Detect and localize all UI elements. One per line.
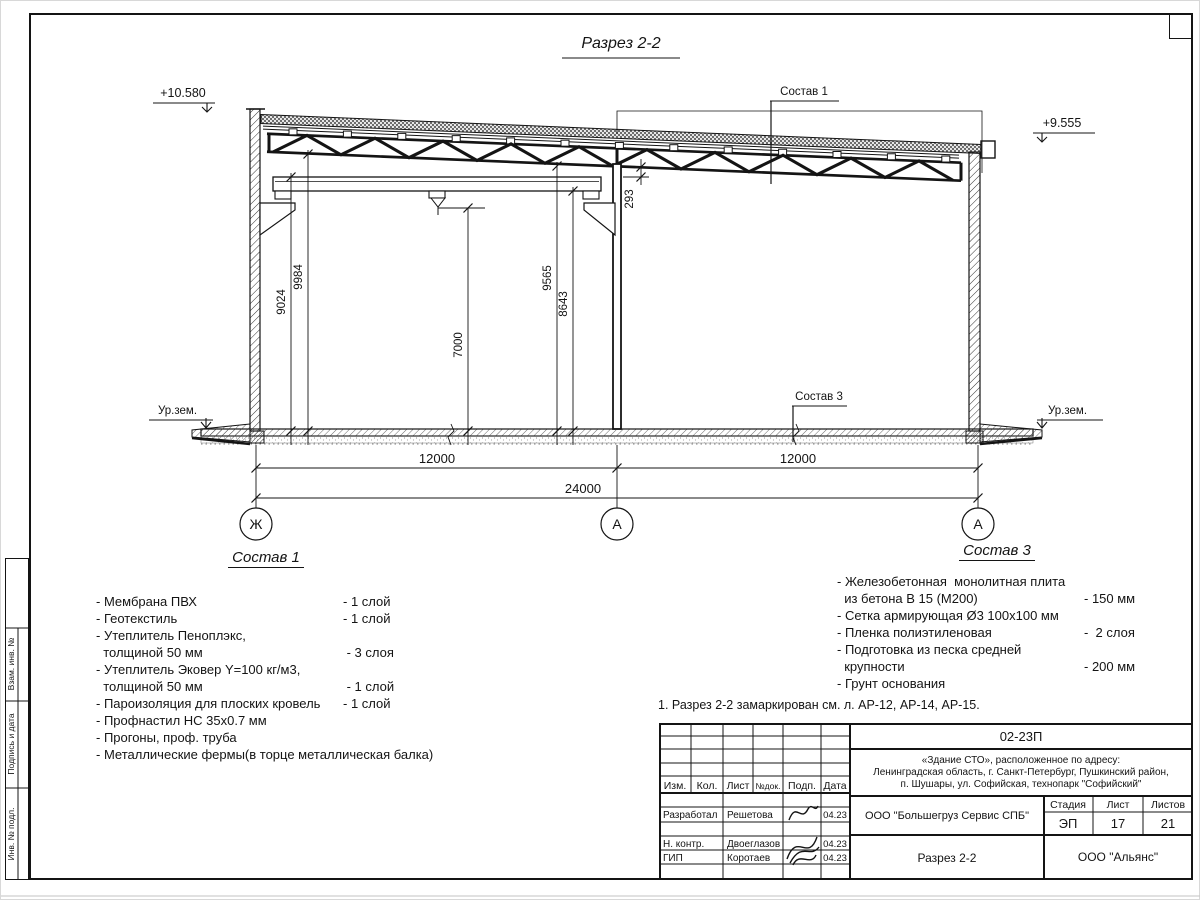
list-item: - Железобетонная монолитная плита — [837, 573, 1167, 590]
sheet-label: Лист — [1107, 799, 1130, 811]
crane-hoist — [429, 191, 445, 215]
dim-span-left: 12000 — [419, 451, 455, 466]
col-list: Лист — [727, 780, 750, 792]
row-date: 04.23 — [823, 810, 847, 821]
left-wall — [246, 109, 265, 431]
col-izm: Изм. — [664, 780, 687, 792]
company-name: ООО "Большегруз Сервис СПБ" — [865, 810, 1029, 822]
roof-edge-cap — [981, 141, 995, 158]
org-name: ООО "Альянс" — [1078, 850, 1158, 864]
col-podp: Подп. — [788, 780, 816, 792]
dim-8643: 8643 — [558, 291, 570, 317]
ground-label-left: Ур.зем. — [158, 405, 197, 417]
axis-label-mid: А — [612, 516, 622, 532]
stage-label: Стадия — [1050, 799, 1086, 811]
list-item: - Профнастил НС 35х0.7 мм — [96, 712, 456, 729]
list-item: - Металлические фермы(в торце металличес… — [96, 746, 456, 763]
list-item: из бетона В 15 (М200)- 150 мм — [837, 590, 1167, 607]
ground-label-right: Ур.зем. — [1048, 405, 1087, 417]
doc-number: 02-23П — [1000, 729, 1043, 744]
project-address-line2: Ленинградская область, г. Санкт-Петербур… — [873, 766, 1169, 778]
page-edge — [1, 895, 1200, 897]
title-block: Изм. Кол. Лист №док. Подп. Дата Разработ… — [659, 723, 1193, 880]
row-date: 04.23 — [823, 853, 847, 864]
elevation-left-text: +10.580 — [160, 86, 206, 100]
row-name: Двоеглазов — [727, 839, 780, 850]
list-item: - Утеплитель Эковер Y=100 кг/м3, — [96, 661, 456, 678]
right-wall — [969, 152, 980, 431]
sostav1-block: Состав 1 - Мембрана ПВХ- 1 слой - Геотек… — [96, 549, 456, 763]
stage-value: ЭП — [1059, 816, 1078, 831]
axis-label-right: А — [973, 516, 983, 532]
left-footing — [250, 431, 264, 443]
list-item: - Грунт основания — [837, 675, 1167, 692]
sostav3-block: Состав 3 - Железобетонная монолитная пли… — [837, 542, 1167, 692]
elevation-mark-right: +9.555 — [1033, 116, 1095, 142]
axis-label-left: Ж — [250, 516, 263, 532]
sostav3-list: - Железобетонная монолитная плита из бет… — [837, 573, 1167, 692]
row-role: ГИП — [663, 853, 683, 864]
list-item: - Геотекстиль- 1 слой — [96, 610, 456, 627]
ground-mark-right: Ур.зем. — [1037, 405, 1103, 428]
sostav1-list: - Мембрана ПВХ- 1 слой - Геотекстиль- 1 … — [96, 593, 456, 763]
side-stamp: Взам. инв. № Подпись и дата Инв. № подл. — [5, 558, 29, 880]
dim-total: 24000 — [565, 481, 601, 496]
list-item: - Пароизоляция для плоских кровель- 1 сл… — [96, 695, 456, 712]
list-item: - Утеплитель Пеноплэкс, — [96, 627, 456, 644]
callout-slab-text: Состав 3 — [795, 391, 843, 403]
list-item: - Сетка армирующая Ø3 100х100 мм — [837, 607, 1167, 624]
dim-293: 293 — [624, 189, 636, 208]
section-title-text: Разрез 2-2 — [581, 35, 660, 52]
sheet-note: 1. Разрез 2-2 замаркирован см. л. АР-12,… — [658, 698, 980, 712]
list-item: толщиной 50 мм - 3 слоя — [96, 644, 456, 661]
horizontal-dimensions — [256, 445, 978, 508]
col-kol: Кол. — [697, 780, 718, 792]
sheets-label: Листов — [1151, 799, 1186, 811]
stamp-cell-vzam: Взам. инв. № — [6, 638, 16, 691]
elevation-mark-left: +10.580 — [153, 86, 215, 112]
list-item: - Мембрана ПВХ- 1 слой — [96, 593, 456, 610]
elevation-right-text: +9.555 — [1043, 116, 1082, 130]
row-name: Решетова — [727, 810, 773, 821]
row-name: Коротаев — [727, 853, 770, 864]
sostav3-title: Состав 3 — [837, 542, 1157, 559]
project-address-line3: п. Шушары, ул. Софийская, технопарк "Соф… — [901, 778, 1142, 790]
sheet-value: 17 — [1111, 816, 1125, 831]
col-data: Дата — [823, 780, 846, 792]
list-item: - Подготовка из песка средней — [837, 641, 1167, 658]
list-item: - Прогоны, проф. труба — [96, 729, 456, 746]
dim-7000: 7000 — [453, 332, 465, 358]
list-item: крупности- 200 мм — [837, 658, 1167, 675]
drawing-sheet: { "drawing": { "title": "Разрез 2-2", "e… — [0, 0, 1200, 900]
left-apron — [192, 424, 250, 444]
section-title: Разрез 2-2 — [562, 35, 680, 58]
row-date: 04.23 — [823, 839, 847, 850]
callout-roof-text: Состав 1 — [780, 86, 828, 98]
sheet-title: Разрез 2-2 — [918, 851, 977, 865]
roof-truss — [261, 115, 993, 181]
row-role: Разработал — [663, 809, 718, 821]
sostav1-title: Состав 1 — [96, 549, 436, 566]
list-item: - Пленка полиэтиленовая- 2 слоя — [837, 624, 1167, 641]
section-drawing: Разрез 2-2 — [1, 1, 1200, 561]
row-role: Н. контр. — [663, 839, 704, 850]
ground-mark-left: Ур.зем. — [149, 405, 213, 428]
dim-9565: 9565 — [542, 265, 554, 291]
sheets-value: 21 — [1161, 816, 1175, 831]
dim-span-right: 12000 — [780, 451, 816, 466]
project-address-line1: «Здание СТО», расположенное по адресу: — [922, 755, 1120, 766]
col-ndok: №док. — [756, 781, 781, 791]
stamp-cell-inv: Инв. № подл. — [6, 808, 16, 861]
list-item: толщиной 50 мм - 1 слой — [96, 678, 456, 695]
stamp-cell-podpis: Подпись и дата — [6, 713, 16, 774]
dim-9984: 9984 — [293, 264, 305, 290]
dim-9024: 9024 — [276, 289, 288, 315]
